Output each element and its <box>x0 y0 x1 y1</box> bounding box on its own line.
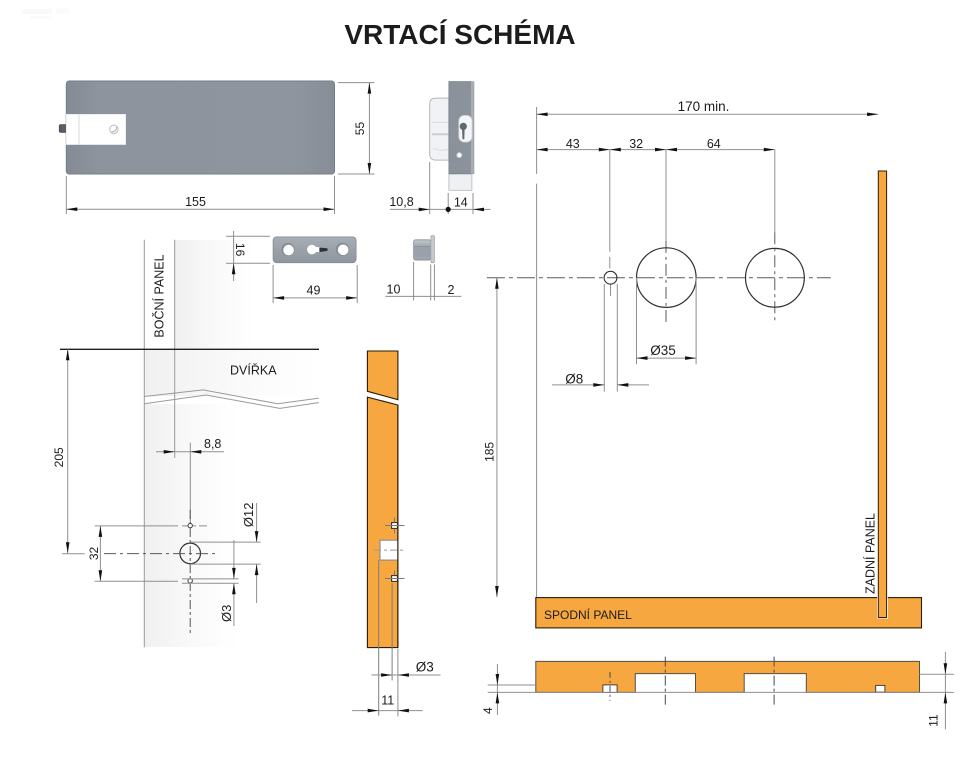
svg-text:205: 205 <box>52 447 66 467</box>
svg-text:43: 43 <box>566 137 580 151</box>
svg-text:Ø3: Ø3 <box>219 605 234 622</box>
svg-text:49: 49 <box>307 284 321 298</box>
svg-text:10: 10 <box>387 283 401 297</box>
svg-text:155: 155 <box>185 195 206 209</box>
svg-text:11: 11 <box>381 694 394 708</box>
svg-text:32: 32 <box>629 137 643 151</box>
svg-text:14: 14 <box>454 195 468 209</box>
svg-text:8,8: 8,8 <box>204 437 221 451</box>
svg-text:11: 11 <box>927 714 941 727</box>
svg-text:55: 55 <box>353 122 367 136</box>
svg-text:Ø35: Ø35 <box>650 343 676 358</box>
svg-text:VRTACÍ SCHÉMA: VRTACÍ SCHÉMA <box>344 19 575 50</box>
svg-text:32: 32 <box>87 547 101 561</box>
svg-text:2: 2 <box>448 283 455 297</box>
svg-text:SPODNÍ PANEL: SPODNÍ PANEL <box>544 607 632 622</box>
svg-text:170 min.: 170 min. <box>678 99 730 114</box>
svg-text:Ø3: Ø3 <box>416 660 434 675</box>
svg-text:Ø8: Ø8 <box>565 371 583 386</box>
svg-text:ZADNÍ PANEL: ZADNÍ PANEL <box>863 513 878 594</box>
svg-text:185: 185 <box>483 442 497 462</box>
svg-text:16: 16 <box>233 243 247 257</box>
svg-text:Ø12: Ø12 <box>241 503 256 528</box>
svg-text:64: 64 <box>707 137 721 151</box>
svg-text:DVÍŘKA: DVÍŘKA <box>230 363 277 378</box>
svg-text:4: 4 <box>481 707 495 714</box>
svg-text:BOČNÍ PANEL: BOČNÍ PANEL <box>152 254 167 337</box>
svg-text:10,8: 10,8 <box>389 195 413 209</box>
